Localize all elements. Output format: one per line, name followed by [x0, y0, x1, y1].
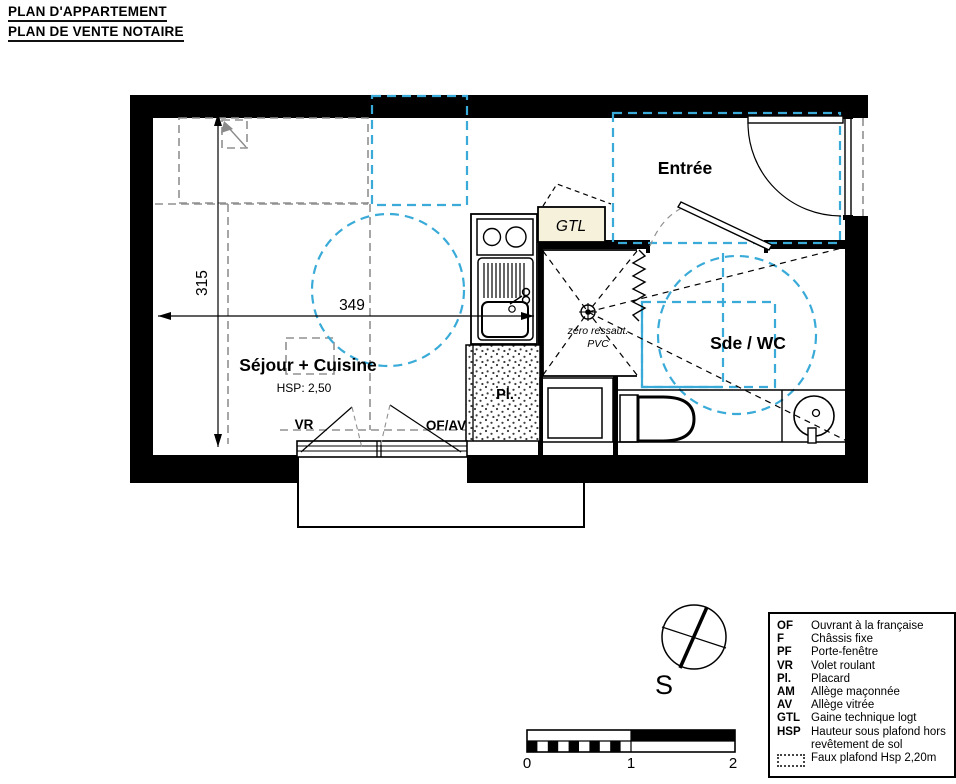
legend-abbr: OF	[777, 620, 811, 633]
scale-bar: 0 1 2	[523, 730, 737, 772]
interior-walls	[538, 240, 845, 455]
gtl-label: GTL	[556, 218, 586, 235]
legend: OFOuvrant à la française FChâssis fixe P…	[768, 612, 956, 778]
sink-unit	[478, 258, 533, 340]
legend-desc: Gaine technique logt	[811, 712, 947, 725]
legend-desc: Faux plafond Hsp 2,20m	[811, 752, 947, 771]
legend-desc: Hauteur sous plafond hors	[811, 726, 947, 739]
of-av-label: OF/AV	[426, 418, 466, 433]
legend-row: VRVolet roulant	[777, 660, 947, 673]
accessibility-zones	[312, 96, 840, 414]
faux-plafond-icon	[777, 754, 805, 767]
shower-drain	[579, 303, 597, 321]
scale-tick-0: 0	[523, 755, 531, 772]
legend-abbr: Pl.	[777, 673, 811, 686]
bathroom-fixtures	[618, 390, 868, 443]
wall-bottom-right	[467, 455, 868, 483]
toilet-tank	[620, 395, 638, 442]
wall-bottom-left	[130, 455, 297, 483]
entry-door	[748, 114, 853, 220]
legend-abbr: AV	[777, 699, 811, 712]
scale-tick-1: 1	[627, 755, 635, 772]
dim-height-label: 315	[194, 270, 211, 296]
wall-top	[130, 95, 868, 118]
legend-row: Pl.Placard	[777, 673, 947, 686]
legend-desc: Ouvrant à la française	[811, 620, 947, 633]
scale-checker	[527, 741, 621, 752]
duct-arrow	[221, 121, 246, 147]
pvc-label: PVC	[587, 338, 609, 350]
legend-desc-continuation: revêtement de sol	[811, 739, 947, 752]
shower-screen-zigzag	[633, 250, 645, 321]
legend-desc: Allège maçonnée	[811, 686, 947, 699]
washer-space	[540, 378, 613, 442]
cooktop	[477, 219, 533, 255]
burner	[506, 227, 526, 247]
drainer-lines	[484, 263, 524, 298]
scale-tick-2: 2	[729, 755, 737, 772]
legend-abbr: AM	[777, 686, 811, 699]
legend-desc: Allège vitrée	[811, 699, 947, 712]
legend-row: Faux plafond Hsp 2,20m	[777, 752, 947, 771]
faux-plafond-zone	[179, 118, 368, 203]
compass-south-label: S	[655, 670, 673, 700]
legend-desc: Placard	[811, 673, 947, 686]
room-label-sde-wc: Sde / WC	[710, 333, 786, 353]
entry-door-closed-leaf	[845, 118, 851, 216]
toilet-bowl	[638, 397, 694, 441]
legend-desc: Porte-fenêtre	[811, 646, 947, 659]
wall-left	[130, 95, 153, 457]
legend-desc: Volet roulant	[811, 660, 947, 673]
legend-abbr: GTL	[777, 712, 811, 725]
legend-abbr: F	[777, 633, 811, 646]
compass: S	[655, 605, 726, 700]
dim-width-label: 349	[339, 297, 365, 314]
entry-door-swing-arc	[748, 123, 841, 216]
legend-row: GTLGaine technique logt	[777, 712, 947, 725]
legend-abbr: HSP	[777, 726, 811, 739]
placard-label: Pl.	[496, 387, 514, 403]
burner	[484, 229, 501, 246]
basin-drain	[808, 428, 816, 443]
zero-ressaut-label: zéro ressaut.	[567, 325, 629, 337]
kitchen-block	[471, 214, 537, 344]
legend-row: OFOuvrant à la française	[777, 620, 947, 633]
legend-row: AVAllège vitrée	[777, 699, 947, 712]
legend-row: FChâssis fixe	[777, 633, 947, 646]
legend-row: AMAllège maçonnée	[777, 686, 947, 699]
entry-door-open-leaf	[748, 116, 843, 123]
legend-abbr	[777, 752, 811, 771]
legend-abbr: VR	[777, 660, 811, 673]
entree-partition-right	[766, 240, 845, 249]
legend-desc: Châssis fixe	[811, 633, 947, 646]
vr-label: VR	[295, 417, 314, 432]
wall-right	[845, 216, 868, 483]
legend-abbr: PF	[777, 646, 811, 659]
legend-row: PFPorte-fenêtre	[777, 646, 947, 659]
hsp-label: HSP: 2,50	[277, 381, 332, 395]
legend-row: HSPHauteur sous plafond hors	[777, 726, 947, 739]
room-label-entree: Entrée	[658, 158, 713, 178]
room-label-sejour: Séjour + Cuisine	[239, 355, 377, 375]
